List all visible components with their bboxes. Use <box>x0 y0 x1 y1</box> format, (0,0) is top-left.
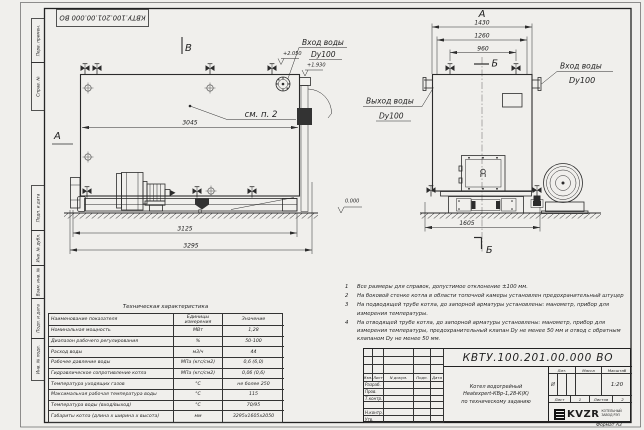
spec-row-name: Температура воды (вход/выход) <box>49 401 174 412</box>
tb-scale-header: Масштаб <box>602 367 632 373</box>
tb-lit-value: И <box>549 374 558 395</box>
spec-row-unit: мм <box>174 411 223 422</box>
tb-col-list: Лист <box>373 374 384 382</box>
tb-col-ndokum: N докум. <box>384 374 414 382</box>
dim-960: 960 <box>477 46 489 53</box>
tb-sheet-value: 1 <box>571 396 590 402</box>
strip-label-podp-data-2: Подп. и дата <box>36 304 41 333</box>
tb-mass-header: Масса <box>576 367 602 373</box>
spec-row-value: 115 <box>223 390 284 401</box>
elevation-2050: +2.050 <box>283 51 302 57</box>
spec-row-unit: % <box>174 337 223 348</box>
spec-row-name: Расход воды <box>49 347 174 358</box>
air-valve-icon <box>512 64 521 75</box>
kvzr-logo-text: KVZR <box>567 409 599 420</box>
drawing-sheet: Перв. примен. Справ. № Подп. и дата Инв.… <box>0 0 644 430</box>
strip-label-sprav-no: Справ. № <box>36 76 41 97</box>
strip-label-podp-data-1: Подп. и дата <box>36 193 41 222</box>
section-mark-b-bottom: Б <box>486 245 493 256</box>
strip-label-inv-podl: Инв. № подл. <box>36 345 41 374</box>
callout-see-item-2: см. п. 2 <box>245 110 278 120</box>
view-mark-a-front: А <box>478 9 486 20</box>
note-number: 3 <box>345 301 357 317</box>
spec-row-unit: °С <box>174 401 223 412</box>
company-name-line2: ЗАВОД РЭП <box>601 414 621 418</box>
tb-col-data: Дата <box>431 374 444 382</box>
tb-sheets-label: Листов <box>590 396 613 402</box>
dim-1605: 1605 <box>459 220 474 227</box>
spec-table-title: Техническая характеристика <box>48 304 283 310</box>
tb-col-izm: Изм. <box>364 374 373 382</box>
title-block: Изм. Лист N докум. Подп. Дата Разраб. Пр… <box>363 348 631 422</box>
front-outlet-label: Выход воды <box>366 97 414 106</box>
elevation-1930: +1.930 <box>307 63 326 69</box>
inlet-flange <box>276 77 290 91</box>
spec-row-name: Диапазон рабочего регулирования <box>49 337 174 348</box>
spec-row-name: Номинальная мощность <box>49 326 174 337</box>
air-valve-icon <box>446 64 455 75</box>
front-inlet-dn: Dy100 <box>569 76 595 85</box>
tb-sig-razrab: Разраб. <box>364 382 384 389</box>
note-number: 1 <box>345 283 357 291</box>
spec-header-unit: Единицы измерения <box>174 314 223 326</box>
drain-valve-icon <box>427 186 436 197</box>
tb-name-line3: по техническому заданию <box>461 399 531 407</box>
rotated-doc-number-stamp: КВТУ.100.201.00.000 ВО <box>59 14 146 22</box>
spec-row-value: 3295х1605х2050 <box>223 411 284 422</box>
dim-3295: 3295 <box>183 243 198 250</box>
spec-table: Наименование показателя Единицы измерени… <box>48 313 283 423</box>
lifting-eye-icon <box>206 186 217 197</box>
elevation-0000: 0.000 <box>345 199 359 205</box>
section-mark-b-top: Б <box>492 59 499 70</box>
spec-row-unit: °С <box>174 390 223 401</box>
dim-1430: 1430 <box>474 20 489 27</box>
spec-row-value: 50-100 <box>223 337 284 348</box>
spec-row-value: 70/95 <box>223 401 284 412</box>
note-text: На подводящей трубе котла, до запорной а… <box>357 301 625 317</box>
spec-row-value: 1,28 <box>223 326 284 337</box>
note-text: На боковой стенке котла в области топочн… <box>357 292 624 300</box>
note-item: 2 На боковой стенке котла в области топо… <box>345 292 625 300</box>
note-item: 3 На подводящей трубе котла, до запорной… <box>345 301 625 317</box>
spec-header-value: Значение <box>223 314 284 326</box>
tb-sig-prov: Пров. <box>364 389 384 396</box>
tb-name-line1: Котел водогрейный <box>470 384 523 392</box>
lifting-eye-icon <box>83 152 94 163</box>
front-outlet-dn: Dy100 <box>379 112 404 121</box>
note-item: 4 На отводящей трубе котла, до запорной … <box>345 319 625 344</box>
front-view: 960 1260 1430 А Б <box>363 9 613 256</box>
spec-row-value: не более 250 <box>223 379 284 390</box>
tb-scale-value: 1:20 <box>602 374 632 395</box>
tb-col-podp: Подп. <box>414 374 431 382</box>
spec-row-unit: МПа (кгс/см2) <box>174 358 223 369</box>
spec-row-name: Максимальная рабочая температура воды <box>49 390 174 401</box>
lifting-eye-icon <box>205 83 216 94</box>
spec-row-unit: °С <box>174 379 223 390</box>
tb-sig-empty <box>364 402 384 409</box>
tb-sheets-value: 2 <box>613 396 632 402</box>
spec-row-unit: МПа (кгс/см2) <box>174 369 223 380</box>
side-inlet-dn: Dy100 <box>311 50 336 59</box>
view-mark-a-side: А <box>53 131 61 142</box>
spec-header-name: Наименование показателя <box>49 314 174 326</box>
spec-row-name: Гидравлическое сопротивление котла <box>49 369 174 380</box>
lifting-eye-icon <box>83 83 94 94</box>
drain-valve-icon <box>533 186 542 197</box>
air-valve-icon <box>206 64 215 75</box>
notes-list: 1 Все размеры для справок, допустимое от… <box>345 283 625 344</box>
note-item: 1 Все размеры для справок, допустимое от… <box>345 283 625 291</box>
tb-sig-nkontr: Н.контр. <box>364 409 384 416</box>
note-number: 2 <box>345 292 357 300</box>
air-valve-icon <box>93 64 102 75</box>
air-valve-icon <box>81 64 90 75</box>
side-inlet-label: Вход воды <box>302 38 344 47</box>
strip-label-vzam-inv: Взам. инв. № <box>36 267 41 296</box>
tb-product-name: Котел водогрейный Heatexpert-КВр-1,28-К(… <box>444 367 549 423</box>
dim-3125: 3125 <box>177 226 192 233</box>
format-label: Формат А3 <box>586 423 632 428</box>
front-inlet-label: Вход воды <box>560 62 602 71</box>
tb-sig-tkontr: Т.контр. <box>364 396 384 403</box>
view-mark-b: В <box>185 43 192 54</box>
side-view: 3045 см. п. 2 В А Вход воды <box>52 37 362 254</box>
dim-1260: 1260 <box>474 33 489 40</box>
spec-row-value: 44 <box>223 347 284 358</box>
tb-doc-number: КВТУ.100.201.00.000 ВО <box>444 349 632 367</box>
note-number: 4 <box>345 319 357 344</box>
spec-row-name: Рабочее давление воды <box>49 358 174 369</box>
company-logo: KVZR КОТЕЛЬНЫЙ ЗАВОД РЭП <box>549 403 632 423</box>
tb-sig-utv: Утв. <box>364 416 384 423</box>
spec-row-name: Габариты котла (длина х ширина х высота) <box>49 411 174 422</box>
strip-label-inv-dubl: Инв. № дубл. <box>36 234 41 263</box>
spec-row-unit: МВт <box>174 326 223 337</box>
spec-row-value: 0,6 (6,0) <box>223 358 284 369</box>
spec-row-name: Температура уходящих газов <box>49 379 174 390</box>
tb-lit-header: Лит. <box>549 367 576 373</box>
strip-label-perv-primen: Перв. примен. <box>36 25 41 56</box>
tb-sheet-label: Лист <box>549 396 571 402</box>
kvzr-logo-icon <box>554 409 565 420</box>
company-name: КОТЕЛЬНЫЙ ЗАВОД РЭП <box>601 410 621 417</box>
air-valve-icon <box>268 64 277 75</box>
spec-row-unit: м3/ч <box>174 347 223 358</box>
note-text: На отводящей трубе котла, до запорной ар… <box>357 319 625 344</box>
spec-row-value: 0,06 (0,6) <box>223 369 284 380</box>
note-text: Все размеры для справок, допустимое откл… <box>357 283 528 291</box>
tb-name-line2: Heatexpert-КВр-1,28-К(К) <box>463 391 529 399</box>
dim-3045: 3045 <box>182 120 197 127</box>
